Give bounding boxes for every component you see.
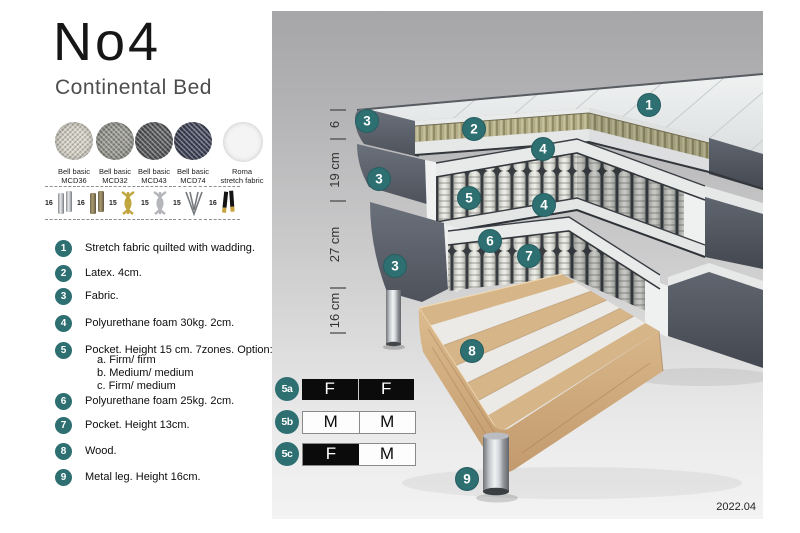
legend-number-badge: 6 (55, 393, 72, 410)
legend-item-3: 3 Fabric. (55, 288, 119, 305)
firmness-bar: F M (302, 443, 416, 466)
legend-number-badge: 7 (55, 417, 72, 434)
firmness-cell: M (303, 412, 360, 433)
legend-item-9: 9 Metal leg. Height 16cm. (55, 469, 201, 486)
legend-text: Fabric. (85, 288, 119, 302)
leg-option-black-gold-tip: 16 (209, 186, 240, 220)
svg-text:8: 8 (468, 344, 476, 359)
svg-text:1: 1 (645, 98, 653, 113)
callout-9: 9 (456, 468, 479, 491)
svg-text:9: 9 (463, 472, 471, 487)
svg-text:3: 3 (391, 259, 399, 274)
firmness-cell: F (303, 444, 359, 465)
fabric-swatch-roma (223, 122, 263, 162)
floor-shadow (402, 467, 742, 499)
dimension-label-16cm: 16 cm (327, 293, 342, 328)
legend-number-badge: 1 (55, 240, 72, 257)
legend-option: a. Firm/ firm (97, 354, 194, 367)
dimension-label-27cm: 27 cm (327, 227, 342, 262)
leg-height-label: 16 (77, 200, 85, 207)
svg-text:2: 2 (470, 122, 478, 137)
page-title: No4 (53, 14, 161, 71)
callout-5: 5 (458, 187, 481, 210)
black-gold-tip-leg-icon (218, 190, 238, 216)
swatch-label: Bell basic MCD74 (169, 167, 217, 185)
dimension-labels: 6 19 cm 27 cm 16 cm (327, 121, 342, 328)
dimension-label-19cm: 19 cm (327, 152, 342, 187)
legend-text: Latex. 4cm. (85, 265, 142, 279)
svg-text:3: 3 (375, 172, 383, 187)
legend-number-badge: 3 (55, 288, 72, 305)
legend-text: Stretch fabric quilted with wadding. (85, 240, 255, 254)
swatch-label: Roma stretch fabric (218, 167, 266, 185)
product-sheet: No4 Continental Bed Bell basic MCD36 Bel… (0, 0, 800, 533)
firmness-cell: F (302, 379, 359, 400)
swatch-name: Bell basic (177, 167, 209, 176)
leg-height-label: 15 (109, 200, 117, 207)
firmness-badge: 5b (275, 410, 299, 434)
legend-item-7: 7 Pocket. Height 13cm. (55, 417, 190, 434)
svg-text:4: 4 (540, 198, 548, 213)
firmness-bar: F F (302, 379, 414, 400)
callout-7: 7 (518, 245, 541, 268)
swatch-code: MCD36 (61, 176, 86, 185)
wood-base (419, 274, 663, 472)
silver-twisted-leg-icon (150, 190, 170, 216)
swatch-code: MCD74 (180, 176, 205, 185)
legend-text: Polyurethane foam 25kg. 2cm. (85, 393, 234, 407)
callout-3-top: 3 (356, 110, 379, 133)
firmness-cell: M (359, 444, 415, 465)
leg-height-label: 15 (173, 200, 181, 207)
fabric-swatch-mcd74 (174, 122, 212, 160)
firmness-cell: M (360, 412, 416, 433)
legend-item-8: 8 Wood. (55, 443, 117, 460)
legend-text: Pocket. Height 13cm. (85, 417, 190, 431)
gold-twisted-leg-icon (118, 190, 138, 216)
bronze-cylinder-leg-icon (86, 190, 108, 216)
svg-text:7: 7 (525, 249, 533, 264)
fabric-swatch-mcd36 (55, 122, 93, 160)
bed-back-leg (383, 290, 405, 350)
legend-option: c. Firm/ medium (97, 380, 194, 393)
legend-number-badge: 4 (55, 315, 72, 332)
legend-item-2: 2 Latex. 4cm. (55, 265, 142, 282)
leg-option-hairpin: 15 (173, 186, 207, 220)
svg-text:4: 4 (539, 142, 547, 157)
callout-4-upper: 4 (532, 138, 555, 161)
firmness-bar: M M (302, 411, 416, 434)
leg-option-silver-twisted: 15 (141, 186, 172, 220)
leg-height-label: 16 (209, 200, 217, 207)
fabric-swatch-mcd32 (96, 122, 134, 160)
legend-text: Metal leg. Height 16cm. (85, 469, 201, 483)
callout-2: 2 (463, 118, 486, 141)
version-label: 2022.04 (716, 501, 756, 513)
callout-4-lower: 4 (533, 194, 556, 217)
callout-3-middle: 3 (368, 168, 391, 191)
legend-item-6: 6 Polyurethane foam 25kg. 2cm. (55, 393, 234, 410)
dimension-label-6: 6 (327, 121, 342, 128)
legend-number-badge: 9 (55, 469, 72, 486)
svg-text:6: 6 (486, 234, 494, 249)
page-subtitle: Continental Bed (55, 76, 212, 100)
legend-option: b. Medium/ medium (97, 367, 194, 380)
leg-height-label: 16 (45, 200, 53, 207)
svg-text:5: 5 (465, 191, 473, 206)
leg-option-bronze-cylinder: 16 (77, 186, 108, 220)
legend-number-badge: 8 (55, 443, 72, 460)
firmness-badge: 5c (275, 442, 299, 466)
legend-5-options: a. Firm/ firm b. Medium/ medium c. Firm/… (97, 354, 194, 392)
swatch-code: stretch fabric (221, 176, 264, 185)
legend-number-badge: 5 (55, 342, 72, 359)
swatch-code: MCD43 (141, 176, 166, 185)
leg-height-label: 15 (141, 200, 149, 207)
firmness-row-5b: 5b M M (275, 410, 416, 434)
swatch-code: MCD32 (102, 176, 127, 185)
callout-1: 1 (638, 94, 661, 117)
firmness-badge: 5a (275, 377, 299, 401)
legend-item-4: 4 Polyurethane foam 30kg. 2cm. (55, 315, 234, 332)
svg-text:3: 3 (363, 114, 371, 129)
swatch-name: Bell basic (138, 167, 170, 176)
legend-text: Wood. (85, 443, 117, 457)
firmness-row-5c: 5c F M (275, 442, 416, 466)
swatch-name: Roma (232, 167, 252, 176)
callout-3-bottom: 3 (384, 255, 407, 278)
firmness-cell: F (359, 379, 415, 400)
swatch-name: Bell basic (99, 167, 131, 176)
firmness-row-5a: 5a F F (275, 377, 414, 401)
leg-option-gold-twisted: 15 (109, 186, 140, 220)
swatch-name: Bell basic (58, 167, 90, 176)
legend-number-badge: 2 (55, 265, 72, 282)
bed-cutaway-panel: 6 19 cm 27 cm 16 cm 1 2 3 4 3 5 4 6 7 3 … (272, 11, 763, 519)
legend-text: Polyurethane foam 30kg. 2cm. (85, 315, 234, 329)
hairpin-leg-icon (182, 190, 206, 216)
fabric-swatch-mcd43 (135, 122, 173, 160)
callout-6: 6 (479, 230, 502, 253)
legend-item-1: 1 Stretch fabric quilted with wadding. (55, 240, 255, 257)
callout-8: 8 (461, 340, 484, 363)
leg-option-chrome-cylinder: 16 (45, 186, 76, 220)
chrome-cylinder-leg-icon (54, 190, 76, 216)
